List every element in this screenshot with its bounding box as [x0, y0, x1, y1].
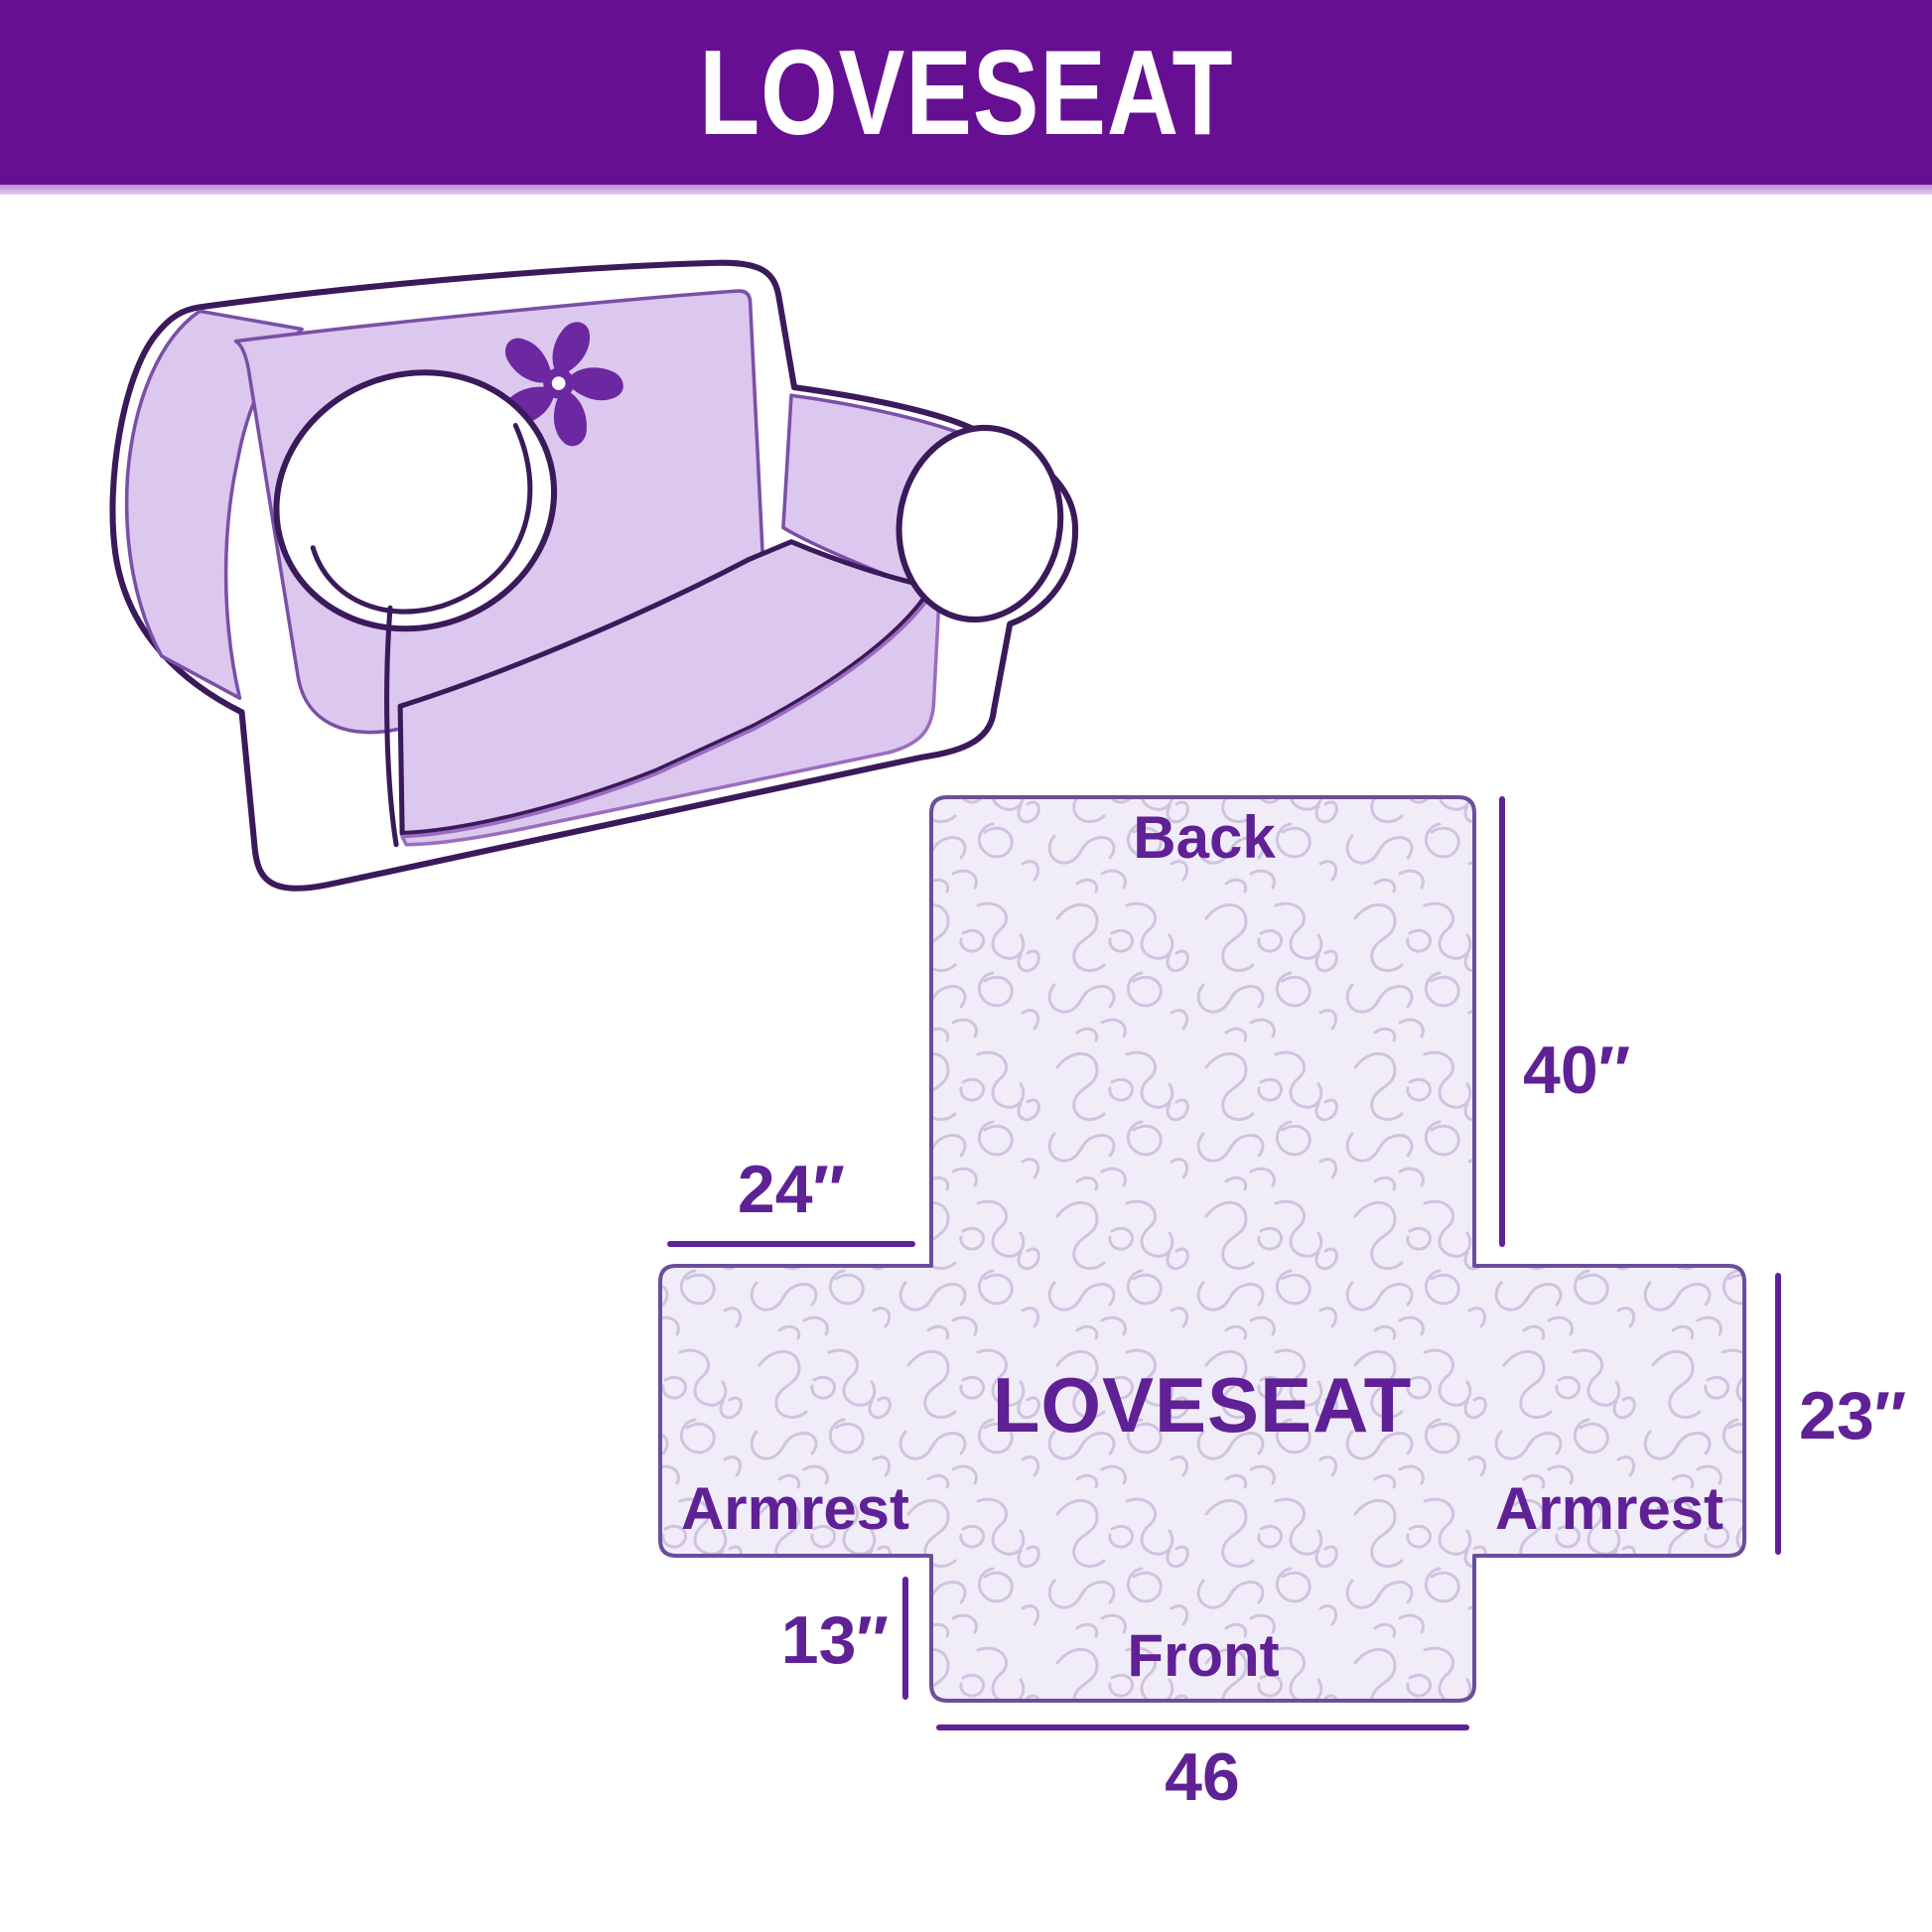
- back-panel-label: Back: [1055, 808, 1353, 868]
- armrest-left-label: Armrest: [646, 1479, 944, 1539]
- center-panel-label: LOVESEAT: [954, 1366, 1450, 1444]
- dimension-front-height: 13″: [764, 1606, 889, 1674]
- cover-cross-shape: [660, 797, 1744, 1701]
- page: LOVESEAT: [0, 0, 1932, 1932]
- cover-dimension-diagram: [0, 0, 1932, 1932]
- front-panel-label: Front: [1054, 1626, 1352, 1686]
- dimension-back-width: 24″: [692, 1156, 891, 1223]
- dimension-line-front-width: [936, 1725, 1469, 1730]
- dimension-line-front-height: [902, 1577, 908, 1700]
- dimension-line-back-height: [1499, 796, 1505, 1247]
- armrest-right-label: Armrest: [1460, 1479, 1758, 1539]
- dimension-line-armrest-height: [1775, 1273, 1781, 1555]
- dimension-front-width: 46: [1103, 1743, 1302, 1811]
- dimension-armrest-height: 23″: [1799, 1382, 1932, 1449]
- dimension-back-height: 40″: [1523, 1036, 1702, 1104]
- dimension-line-back-width: [667, 1241, 915, 1247]
